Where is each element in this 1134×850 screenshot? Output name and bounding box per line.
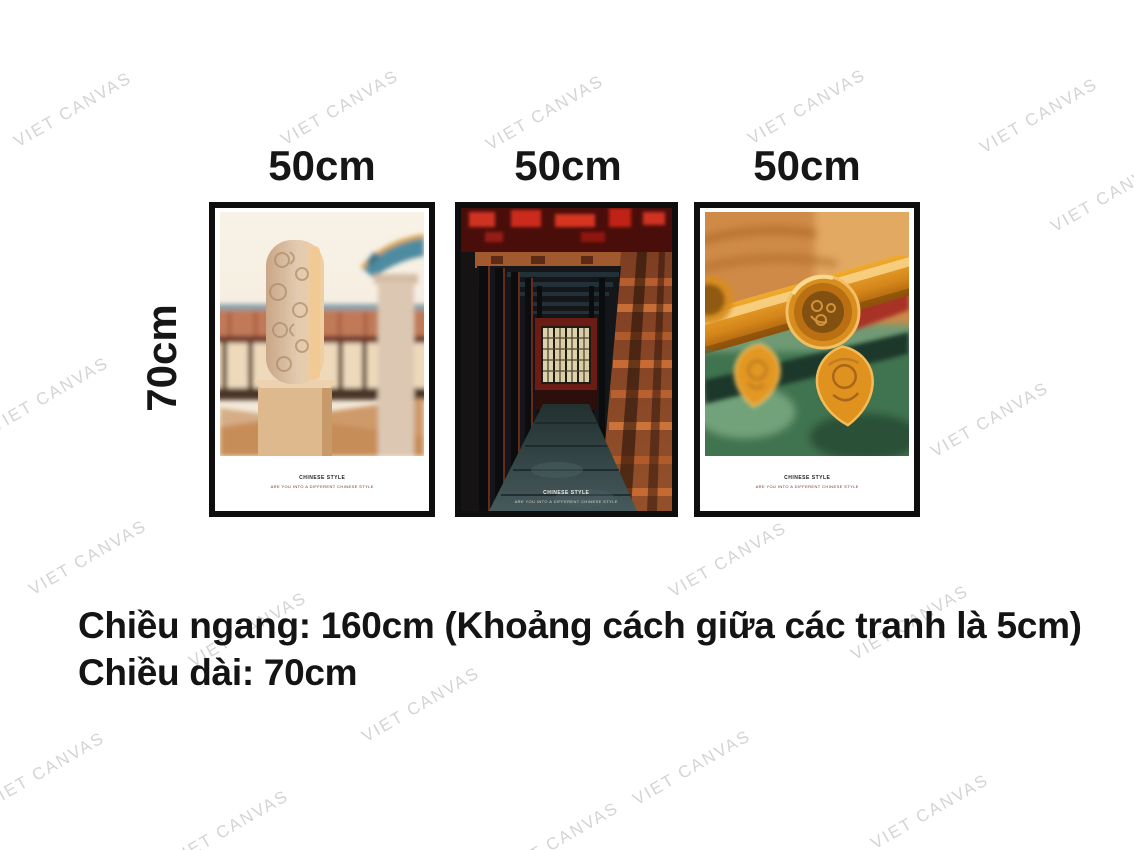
- watermark-text: VIET CANVAS: [277, 66, 402, 150]
- poster-frame-3: CHINESE STYLE ARE YOU INTO A DIFFERENT C…: [694, 202, 920, 517]
- watermark-text: VIET CANVAS: [629, 726, 754, 810]
- product-mockup: VIET CANVASVIET CANVASVIET CANVASVIET CA…: [0, 0, 1134, 850]
- watermark-text: VIET CANVAS: [744, 65, 869, 149]
- watermark-text: VIET CANVAS: [497, 798, 622, 850]
- caption-title: CHINESE STYLE: [299, 474, 345, 480]
- caption-title: CHINESE STYLE: [784, 474, 830, 480]
- watermark-text: VIET CANVAS: [0, 728, 109, 812]
- poster-photo-roof-tiles: [705, 212, 909, 456]
- width-label-1: 50cm: [209, 142, 435, 190]
- caption-subtitle: ARE YOU INTO A DIFFERENT CHINESE STYLE: [270, 484, 373, 489]
- poster-caption: CHINESE STYLE ARE YOU INTO A DIFFERENT C…: [705, 456, 909, 511]
- watermark-text: VIET CANVAS: [10, 68, 135, 152]
- poster-photo-pillar: [220, 212, 424, 456]
- watermark-text: VIET CANVAS: [25, 516, 150, 600]
- poster-caption: CHINESE STYLE ARE YOU INTO A DIFFERENT C…: [220, 456, 424, 511]
- watermark-text: VIET CANVAS: [167, 786, 292, 850]
- dimension-notes: Chiều ngang: 160cm (Khoảng cách giữa các…: [78, 602, 1082, 696]
- footer-line-1: Chiều ngang: 160cm (Khoảng cách giữa các…: [78, 602, 1082, 649]
- poster-frame-2: CHINESE STYLE ARE YOU INTO A DIFFERENT C…: [455, 202, 678, 517]
- width-label-3: 50cm: [694, 142, 920, 190]
- poster-photo-corridor: [461, 208, 672, 511]
- watermark-text: VIET CANVAS: [867, 770, 992, 850]
- watermark-text: VIET CANVAS: [927, 378, 1052, 462]
- poster-frame-1: CHINESE STYLE ARE YOU INTO A DIFFERENT C…: [209, 202, 435, 517]
- height-label: 70cm: [138, 303, 186, 413]
- watermark-text: VIET CANVAS: [1047, 153, 1134, 237]
- footer-line-2: Chiều dài: 70cm: [78, 649, 1082, 696]
- poster-caption: CHINESE STYLE ARE YOU INTO A DIFFERENT C…: [461, 487, 672, 506]
- watermark-text: VIET CANVAS: [0, 353, 113, 437]
- watermark-text: VIET CANVAS: [976, 74, 1101, 158]
- caption-subtitle: ARE YOU INTO A DIFFERENT CHINESE STYLE: [755, 484, 858, 489]
- caption-title: CHINESE STYLE: [543, 490, 589, 496]
- caption-subtitle: ARE YOU INTO A DIFFERENT CHINESE STYLE: [515, 499, 618, 504]
- watermark-text: VIET CANVAS: [665, 518, 790, 602]
- width-label-2: 50cm: [455, 142, 681, 190]
